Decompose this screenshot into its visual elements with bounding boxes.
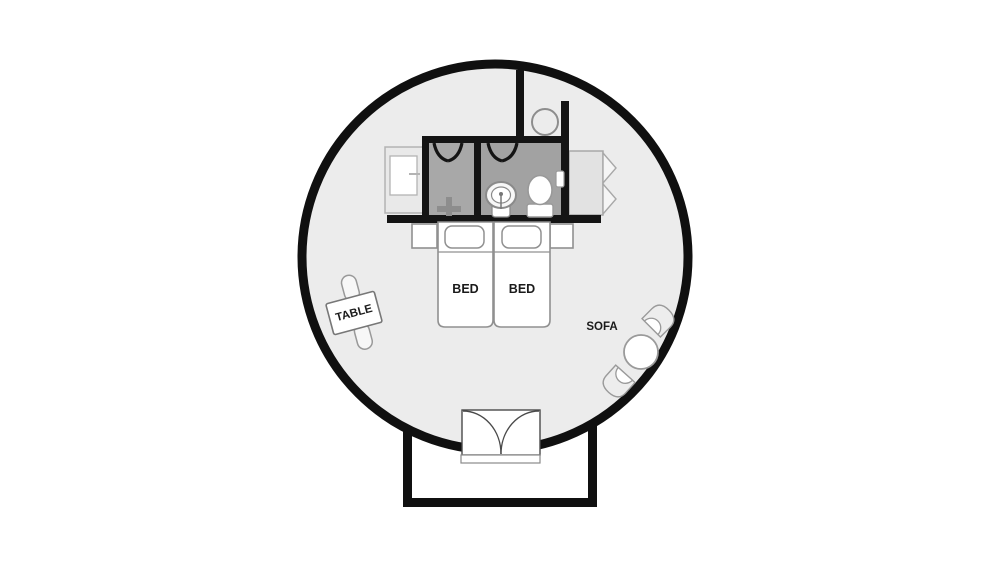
pillow-right	[502, 226, 541, 248]
cabinet	[385, 147, 423, 213]
cabinet-door	[390, 156, 417, 195]
door-threshold	[461, 455, 540, 463]
wall-shelf-icon	[556, 171, 564, 187]
pillow-left	[445, 226, 484, 248]
wall-top-left	[516, 70, 524, 143]
floor-plan-drawing: BED BED TABLE SOFA	[0, 0, 1000, 572]
wall-bathroom-left	[422, 136, 429, 223]
round-basin-icon	[532, 109, 558, 135]
entrance-double-door-icon	[461, 410, 540, 463]
round-coffee-table	[624, 335, 658, 369]
bed-right-label: BED	[509, 282, 535, 296]
sofa-label: SOFA	[586, 321, 617, 333]
wall-bathroom-top	[422, 136, 569, 143]
wall-bathroom-divider	[474, 136, 481, 223]
nightstand-left	[412, 224, 437, 248]
floor-plan-page: BED BED TABLE SOFA	[0, 0, 1000, 572]
bed-left-label: BED	[452, 282, 478, 296]
nightstand-right	[550, 224, 573, 248]
wall-right	[561, 101, 569, 223]
toilet-icon	[527, 176, 553, 218]
